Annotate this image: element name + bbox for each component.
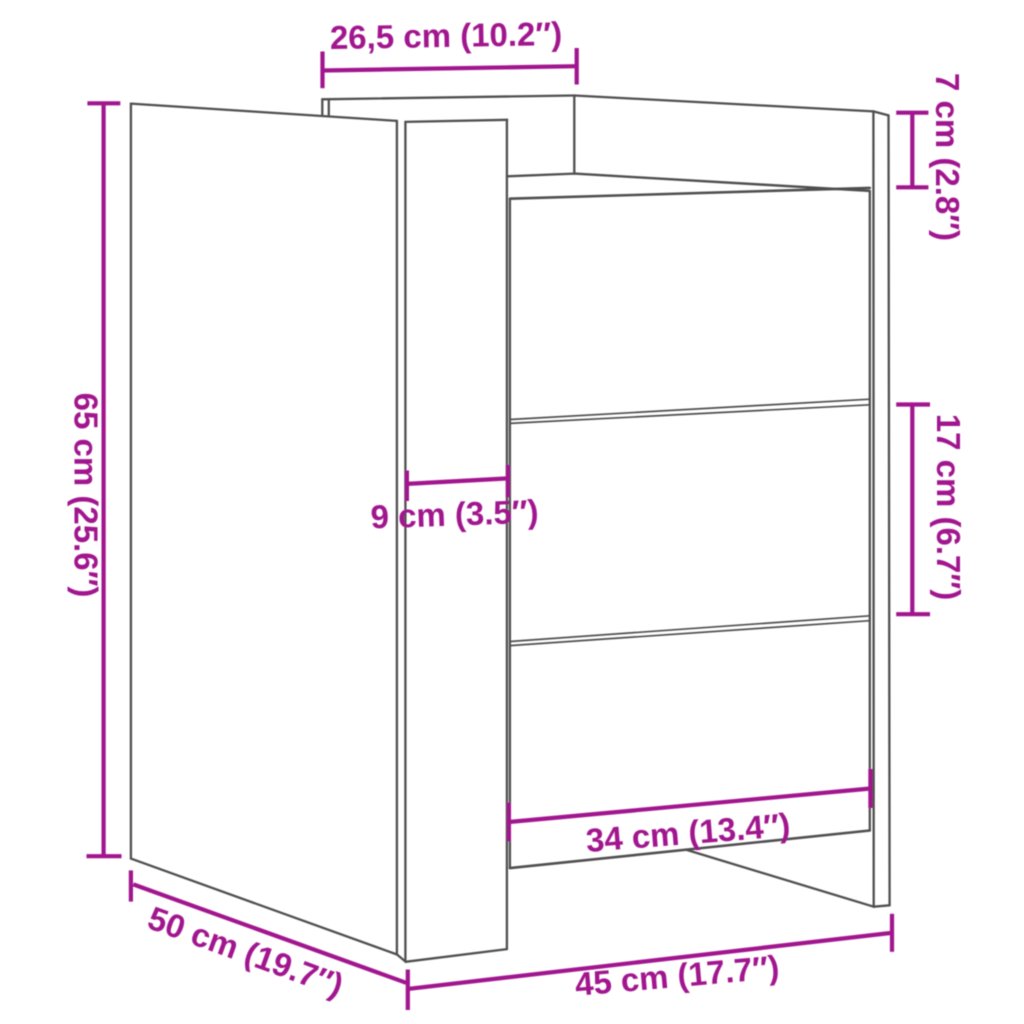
svg-text:17 cm (6.7″): 17 cm (6.7″) bbox=[930, 414, 967, 600]
svg-text:7 cm (2.8″): 7 cm (2.8″) bbox=[929, 73, 966, 241]
svg-text:26,5 cm (10.2″): 26,5 cm (10.2″) bbox=[330, 15, 563, 56]
svg-text:9 cm (3.5″): 9 cm (3.5″) bbox=[370, 493, 539, 536]
svg-text:65 cm (25.6″): 65 cm (25.6″) bbox=[68, 393, 105, 598]
